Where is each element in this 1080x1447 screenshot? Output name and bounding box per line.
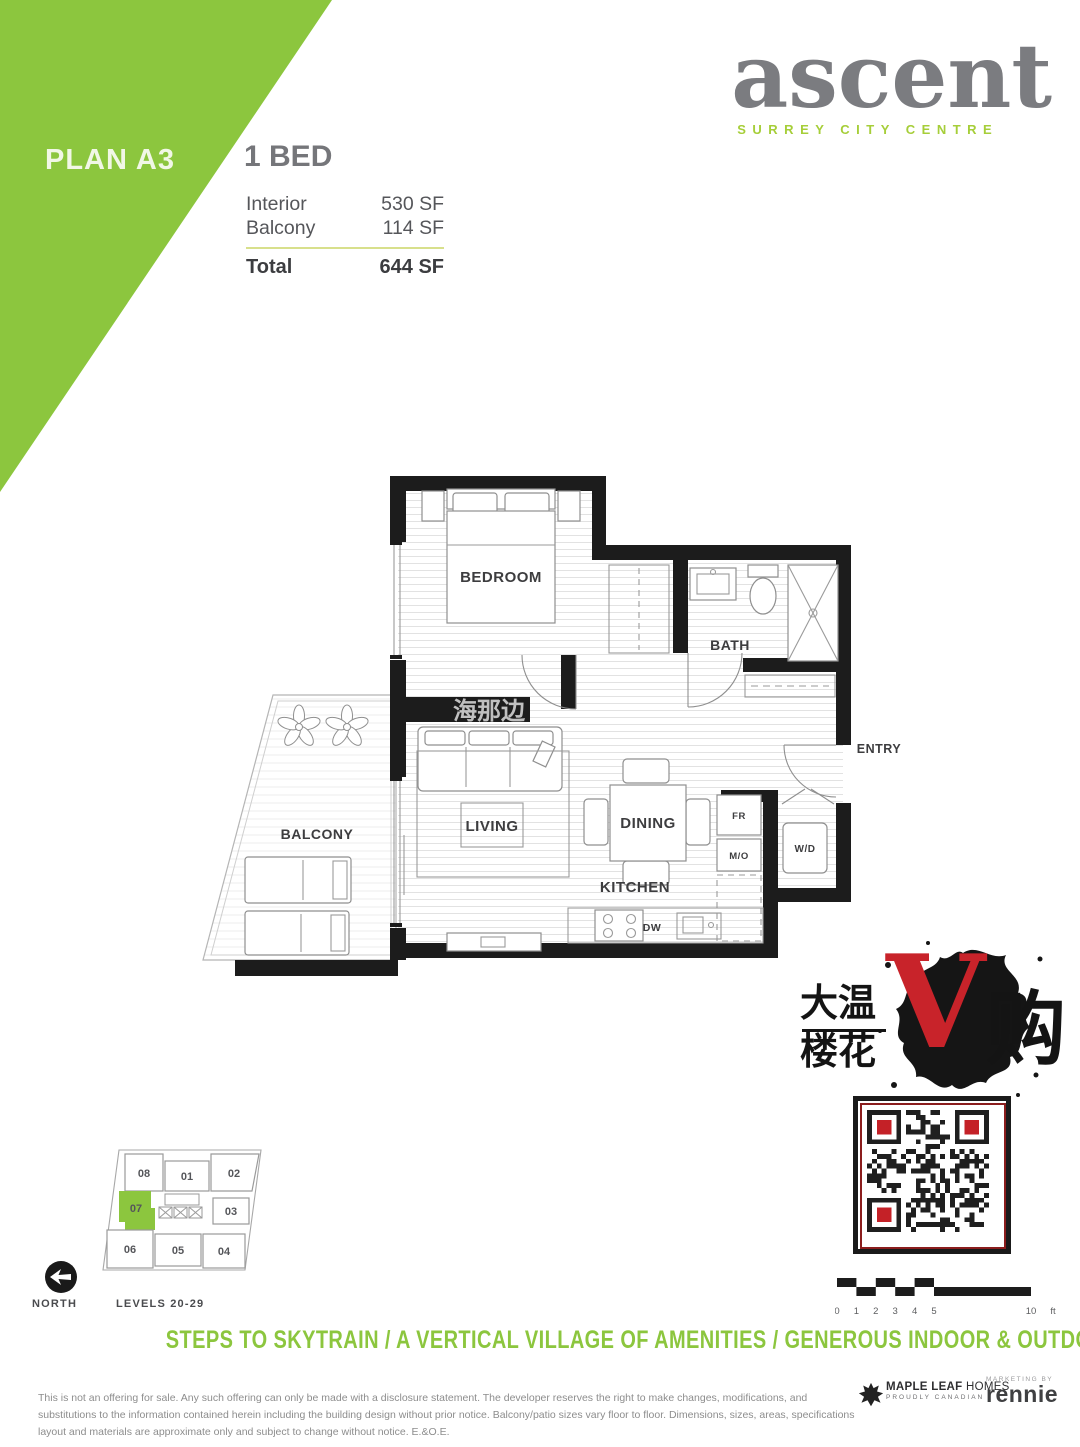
area-row-balcony: Balcony 114 SF	[246, 216, 444, 240]
area-table: Interior 530 SF Balcony 114 SF Total 644…	[246, 192, 444, 279]
marketing-tagline-text: STEPS TO SKYTRAIN / A VERTICAL VILLAGE O…	[166, 1326, 1080, 1355]
unit-label: 03	[225, 1206, 237, 1218]
microwave-label: M/O	[729, 851, 748, 862]
legal-disclaimer: This is not an offering for sale. Any su…	[38, 1390, 856, 1440]
bedroom-count-title: 1 BED	[244, 140, 332, 174]
stamp-text-gou: 购	[986, 987, 1066, 1071]
scale-tick: 0	[835, 1306, 840, 1317]
scale-tick: 10	[1026, 1306, 1037, 1317]
area-row-total: Total 644 SF	[246, 255, 444, 279]
scale-tick: 1	[854, 1306, 859, 1317]
dishwasher-label: DW	[643, 922, 662, 934]
brand-logo: ascent SURREY CITY CENTRE	[731, 30, 1052, 137]
marketing-agency-logo: MARKETING BY rennie	[986, 1376, 1058, 1405]
area-divider	[246, 247, 444, 249]
balcony-label: BALCONY	[281, 826, 354, 842]
scale-tick: 5	[931, 1306, 936, 1317]
area-value: 530 SF	[381, 192, 444, 216]
scale-bar-blocks	[837, 1278, 1031, 1296]
floorplan-drawing: BEDROOM BATH	[185, 455, 905, 985]
living-label: LIVING	[465, 818, 518, 835]
stamp-text-dawen: 大温	[800, 983, 876, 1023]
qr-code-pattern	[867, 1110, 989, 1232]
marketing-agency-name: rennie	[986, 1383, 1058, 1405]
developer-name-bold: MAPLE LEAF	[886, 1381, 962, 1393]
scale-tick: 2	[873, 1306, 878, 1317]
scale-tick: 3	[893, 1306, 898, 1317]
scale-unit: ft	[1050, 1306, 1056, 1317]
fridge-label: FR	[732, 811, 746, 822]
total-value: 644 SF	[380, 255, 444, 279]
area-label: Interior	[246, 192, 307, 216]
area-label: Balcony	[246, 216, 315, 240]
qr-code-inner-border	[860, 1103, 1006, 1249]
wechat-stamp-logo: 大温 楼花 V 购	[790, 935, 1080, 1115]
stamp-letter-v: V	[886, 943, 985, 1063]
unit-label: 05	[172, 1245, 184, 1257]
plan-title: PLAN A3	[45, 144, 175, 177]
dining-label: DINING	[620, 815, 676, 832]
bedroom-label: BEDROOM	[460, 569, 542, 586]
elevator-core	[159, 1194, 202, 1218]
scale-tick: 4	[912, 1306, 917, 1317]
stamp-text-louhua: 楼花	[800, 1031, 876, 1071]
flyer-page: PLAN A3 1 BED Interior 530 SF Balcony 11…	[0, 0, 1080, 1447]
entry-label: ENTRY	[857, 742, 902, 756]
unit-label: 01	[181, 1171, 193, 1183]
scale-bar: 0 1 2 3 4 5 10 ft	[835, 1272, 1067, 1322]
unit-label: 04	[218, 1246, 231, 1258]
marketing-tagline: STEPS TO SKYTRAIN / A VERTICAL VILLAGE O…	[0, 1326, 1080, 1355]
north-label: NORTH	[32, 1298, 77, 1310]
total-label: Total	[246, 255, 292, 279]
kitchen-label: KITCHEN	[600, 879, 670, 896]
unit-label: 06	[124, 1244, 136, 1256]
levels-label: LEVELS 20-29	[116, 1298, 204, 1310]
unit-label: 02	[228, 1168, 240, 1180]
washer-dryer-label: W/D	[795, 844, 816, 855]
area-row-interior: Interior 530 SF	[246, 192, 444, 216]
unit-label-highlighted: 07	[130, 1203, 142, 1215]
watermark-text: 海那边	[453, 696, 526, 725]
maple-leaf-icon	[858, 1381, 884, 1409]
qr-code	[853, 1096, 1011, 1254]
area-value: 114 SF	[383, 216, 444, 240]
bath-label: BATH	[710, 637, 750, 653]
key-plan: 08 01 02 07 03 06 05 04	[95, 1142, 275, 1277]
unit-label: 08	[138, 1168, 150, 1180]
north-arrow-icon	[44, 1260, 78, 1294]
brand-name: ascent	[731, 30, 1052, 122]
